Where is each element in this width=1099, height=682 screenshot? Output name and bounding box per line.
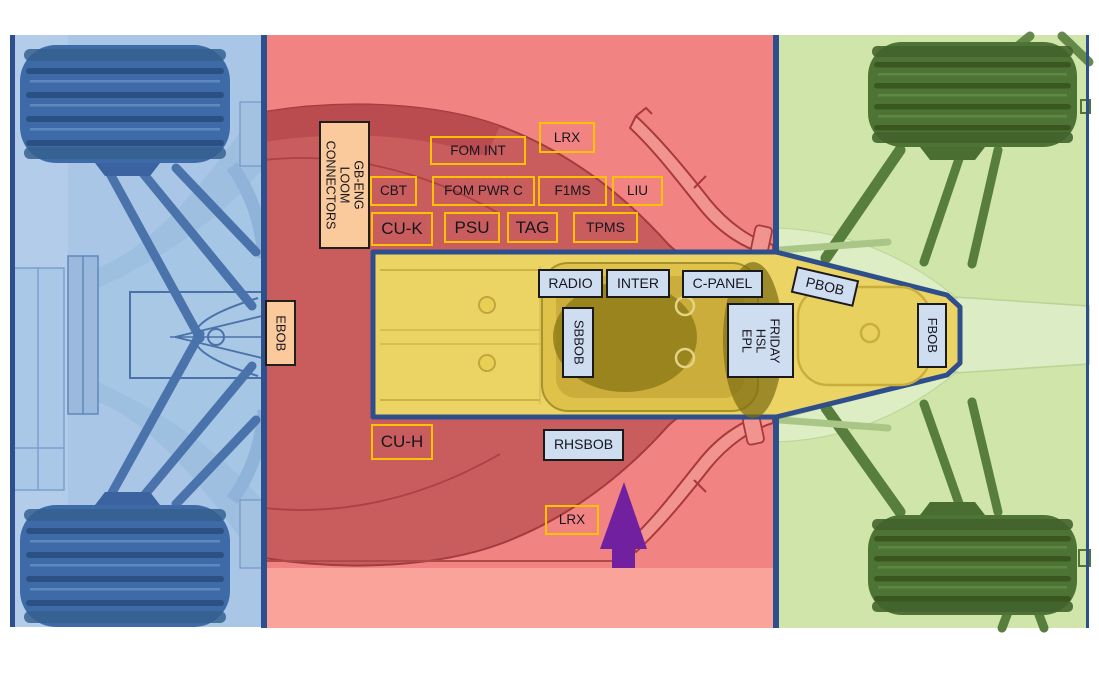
- front-right-wheel: [868, 502, 1077, 615]
- label-cbt-text: CBT: [380, 183, 407, 198]
- label-lrx-top-text: LRX: [554, 130, 580, 145]
- label-friday-hsl-epl-text: FRIDAY HSL EPL: [739, 318, 781, 363]
- label-cbt: CBT: [370, 176, 417, 206]
- label-cu-k-text: CU-K: [381, 219, 423, 238]
- label-gb-eng-loom-connectors: GB-ENG LOOM CONNECTORS: [319, 121, 370, 249]
- diagram-stage: GB-ENG LOOM CONNECTORSLRXFOM INTCBTFOM P…: [0, 0, 1099, 682]
- label-fbob: FBOB: [917, 303, 947, 368]
- label-ebob: EBOB: [265, 300, 296, 366]
- label-liu: LIU: [612, 176, 663, 206]
- label-liu-text: LIU: [627, 183, 648, 198]
- label-sbbob: SBBOB: [562, 307, 594, 378]
- label-lrx-bottom-text: LRX: [559, 512, 585, 527]
- label-cu-h-text: CU-H: [381, 432, 424, 451]
- label-radio: RADIO: [538, 269, 603, 298]
- label-psu-text: PSU: [455, 218, 490, 237]
- label-ebob-text: EBOB: [273, 315, 288, 351]
- label-lrx-top: LRX: [539, 122, 595, 153]
- label-inter: INTER: [606, 269, 670, 298]
- label-lrx-bottom: LRX: [545, 505, 599, 535]
- rear-artwork: [10, 35, 264, 627]
- label-tag: TAG: [507, 212, 558, 243]
- label-psu: PSU: [444, 212, 500, 243]
- label-rhsbob-text: RHSBOB: [554, 437, 613, 453]
- label-rhsbob: RHSBOB: [543, 429, 624, 461]
- label-tag-text: TAG: [516, 218, 550, 237]
- rear-left-wheel: [20, 45, 230, 176]
- label-pbob-text: PBOB: [804, 274, 845, 298]
- label-f1ms-text: F1MS: [554, 183, 590, 198]
- rear-right-wheel: [20, 492, 230, 627]
- front-left-wheel: [868, 42, 1077, 160]
- label-fbob-text: FBOB: [925, 318, 940, 353]
- label-cu-h: CU-H: [371, 424, 433, 460]
- label-c-panel: C-PANEL: [682, 270, 763, 298]
- label-friday-hsl-epl: FRIDAY HSL EPL: [727, 303, 794, 378]
- label-c-panel-text: C-PANEL: [693, 276, 753, 292]
- label-tpms: TPMS: [573, 212, 638, 243]
- label-fom-int-text: FOM INT: [450, 143, 506, 158]
- label-sbbob-text: SBBOB: [571, 320, 586, 365]
- label-cu-k: CU-K: [371, 212, 433, 246]
- label-tpms-text: TPMS: [586, 220, 625, 236]
- label-inter-text: INTER: [617, 276, 659, 292]
- label-fom-int: FOM INT: [430, 136, 526, 165]
- label-fom-pwr-c-text: FOM PWR C: [444, 183, 523, 198]
- label-f1ms: F1MS: [538, 176, 607, 206]
- label-gb-eng-loom-connectors-text: GB-ENG LOOM CONNECTORS: [324, 141, 366, 230]
- label-radio-text: RADIO: [548, 276, 592, 292]
- label-fom-pwr-c: FOM PWR C: [432, 176, 535, 206]
